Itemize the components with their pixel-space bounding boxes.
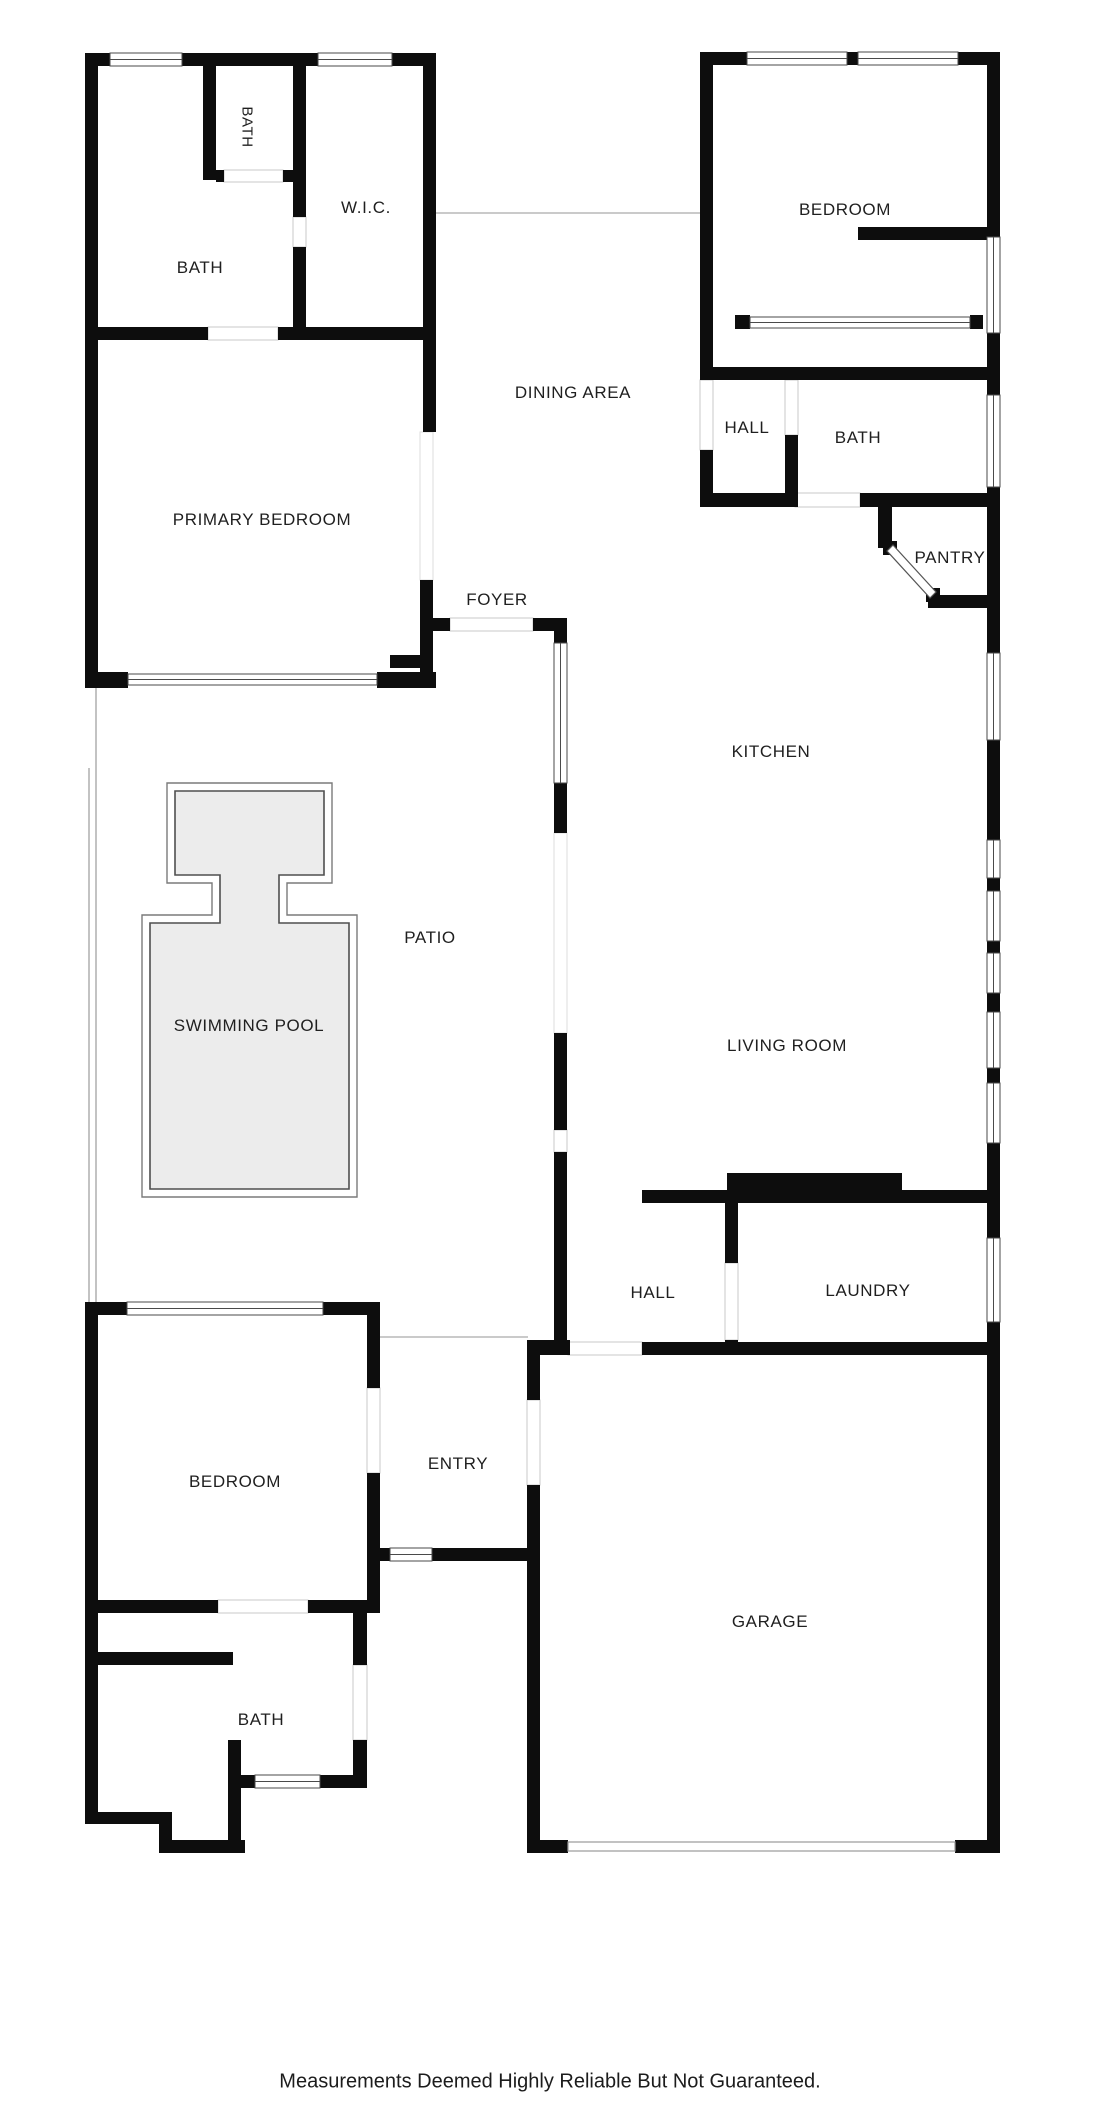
room-label-wic: W.I.C. [341, 198, 391, 218]
room-label-bath-upper: BATH [177, 258, 223, 278]
room-label-bedroom-top: BEDROOM [799, 200, 891, 220]
garage-door [568, 1842, 955, 1851]
disclaimer-text: Measurements Deemed Highly Reliable But … [279, 2071, 820, 2094]
room-label-pantry: PANTRY [915, 548, 986, 568]
room-label-hall-lower: HALL [631, 1283, 676, 1303]
room-label-patio: PATIO [404, 928, 456, 948]
room-label-swimming-pool: SWIMMING POOL [174, 1016, 324, 1036]
room-label-living-room: LIVING ROOM [727, 1036, 847, 1056]
room-label-garage: GARAGE [732, 1612, 808, 1632]
room-label-kitchen: KITCHEN [732, 742, 811, 762]
swimming-pool-shape [142, 783, 357, 1197]
floor-plan: BATH W.I.C. BATH BEDROOM DINING AREA HAL… [0, 0, 1100, 2125]
room-label-bath-small: BATH [239, 106, 256, 147]
room-label-bath-right: BATH [835, 428, 881, 448]
floor-plan-drawing [0, 0, 1100, 2125]
room-label-foyer: FOYER [466, 590, 528, 610]
room-label-primary-bedroom: PRIMARY BEDROOM [173, 510, 351, 530]
room-label-bedroom-lower: BEDROOM [189, 1472, 281, 1492]
patio-boundary-lines [89, 688, 96, 1302]
room-label-entry: ENTRY [428, 1454, 488, 1474]
room-label-bath-lower: BATH [238, 1710, 284, 1730]
room-label-dining-area: DINING AREA [515, 383, 631, 403]
room-label-laundry: LAUNDRY [825, 1281, 910, 1301]
room-label-hall-upper: HALL [725, 418, 770, 438]
